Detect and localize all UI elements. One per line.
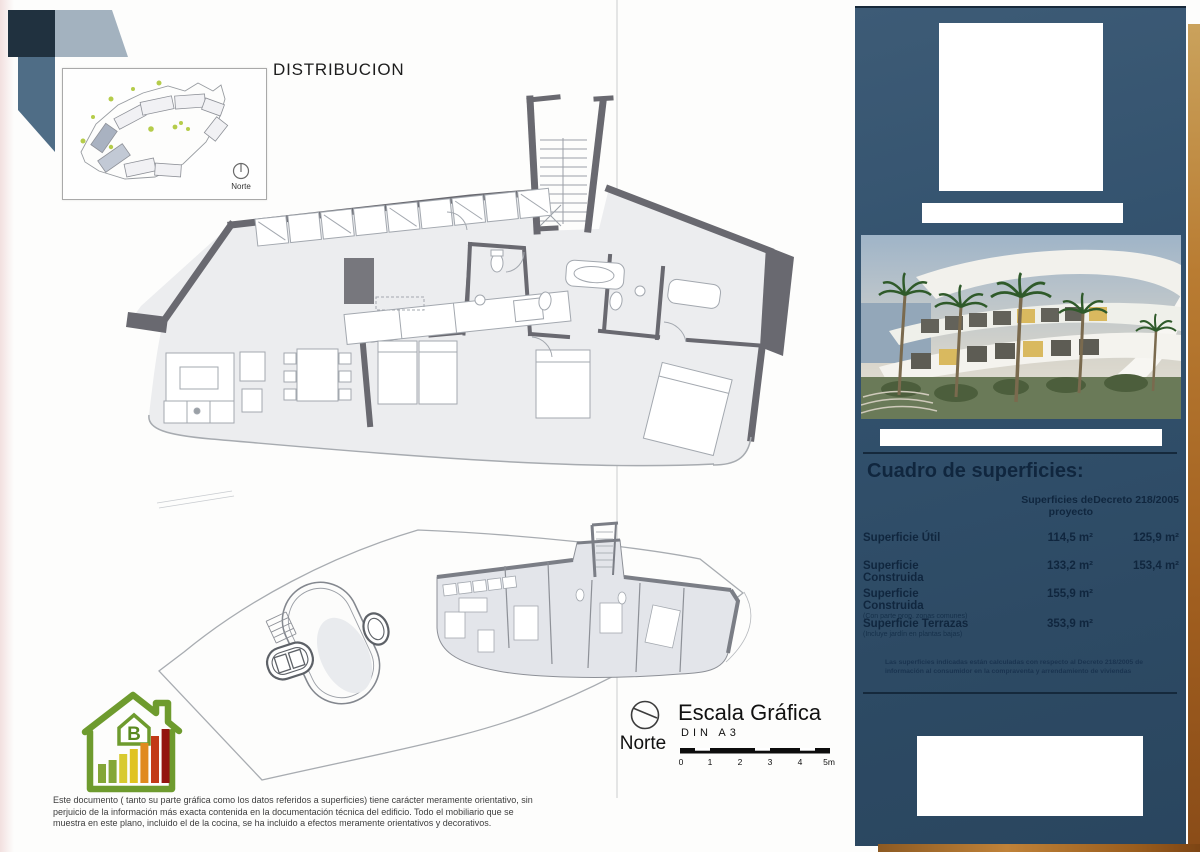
row-project-value: 114,5 m² [981, 532, 1093, 544]
redacted-footer-box [917, 736, 1143, 816]
building-render-image [861, 235, 1181, 419]
row-decreto-value: 153,4 m² [1093, 560, 1179, 584]
svg-text:1: 1 [708, 757, 713, 767]
table-row: Superficie Construida (Con parte prop. z… [863, 588, 1179, 620]
panel-divider-bottom [863, 692, 1177, 694]
energy-rating-letter: B [127, 724, 141, 745]
col-project-header: Superficies de proyecto [981, 494, 1093, 518]
table-row: Superficie Terrazas (Incluye jardín en p… [863, 618, 1179, 638]
table-surface-edge [1188, 24, 1200, 852]
table-surface-edge [878, 844, 1200, 852]
scale-din-label: DIN A3 [681, 727, 740, 739]
surfaces-table-header: Superficies de proyecto Decreto 218/2005 [863, 494, 1179, 518]
svg-text:0: 0 [679, 757, 684, 767]
panel-divider-top [863, 452, 1177, 454]
energy-rating-icon: B [73, 686, 188, 801]
row-sublabel: (Incluye jardín en plantas bajas) [863, 631, 981, 638]
redacted-caption-bar [880, 429, 1162, 446]
row-project-value: 133,2 m² [981, 560, 1093, 584]
redacted-name-bar [922, 203, 1123, 223]
table-row: Superficie Útil 114,5 m² 125,9 m² [863, 532, 1179, 544]
upper-floor-plan [115, 90, 810, 480]
redacted-logo-box [939, 23, 1103, 191]
row-decreto-value: 125,9 m² [1093, 532, 1179, 544]
marketing-side-panel: Cuadro de superficies: Superficies de pr… [855, 6, 1186, 846]
row-label: Superficie Construida [863, 588, 981, 612]
table-footnote: Las superficies indicadas están calculad… [885, 658, 1153, 676]
row-decreto-value [1093, 588, 1179, 620]
svg-text:4: 4 [798, 757, 803, 767]
row-project-value: 353,9 m² [981, 618, 1093, 638]
row-label: Superficie Terrazas [863, 618, 981, 630]
col-decreto-header: Decreto 218/2005 [1093, 494, 1179, 518]
svg-text:5m: 5m [823, 757, 835, 767]
page-title: DISTRIBUCION [273, 60, 404, 80]
row-decreto-value [1093, 618, 1179, 638]
north-compass-icon [626, 697, 664, 735]
graphic-scale-bar: 0 1 2 3 4 5m [676, 744, 842, 772]
row-label: Superficie Construida [863, 560, 981, 584]
scanned-plan-page: Norte DISTRIBUCION [0, 0, 1200, 852]
row-project-value: 155,9 m² [981, 588, 1093, 620]
table-row: Superficie Construida 133,2 m² 153,4 m² [863, 560, 1179, 584]
surfaces-table-title: Cuadro de superficies: [867, 460, 1084, 483]
scale-title: Escala Gráfica [678, 700, 821, 726]
svg-text:2: 2 [738, 757, 743, 767]
svg-text:3: 3 [768, 757, 773, 767]
row-label: Superficie Útil [863, 532, 981, 544]
disclaimer-text: Este documento ( tanto su parte gráfica … [53, 795, 537, 830]
north-label: Norte [608, 733, 678, 755]
